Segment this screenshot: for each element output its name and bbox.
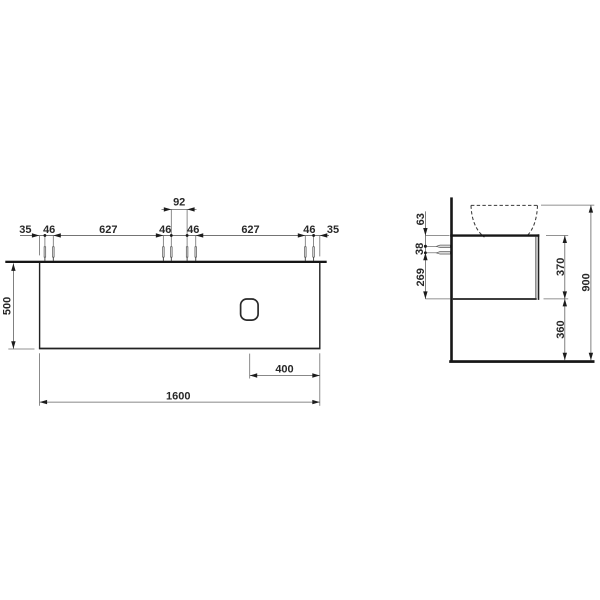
svg-text:35: 35 (327, 224, 339, 236)
svg-text:1600: 1600 (166, 391, 190, 403)
svg-text:900: 900 (580, 273, 592, 291)
svg-text:46: 46 (303, 224, 315, 236)
svg-text:63: 63 (415, 213, 427, 225)
svg-text:370: 370 (555, 258, 567, 276)
svg-text:627: 627 (99, 224, 117, 236)
svg-text:46: 46 (159, 224, 171, 236)
svg-text:92: 92 (173, 197, 185, 209)
svg-text:500: 500 (2, 297, 14, 315)
svg-text:46: 46 (43, 224, 55, 236)
svg-text:269: 269 (415, 268, 427, 286)
svg-text:360: 360 (555, 320, 567, 338)
svg-text:46: 46 (187, 224, 199, 236)
svg-text:627: 627 (241, 224, 259, 236)
svg-text:400: 400 (275, 363, 293, 375)
svg-text:35: 35 (19, 224, 31, 236)
svg-text:38: 38 (414, 243, 426, 255)
